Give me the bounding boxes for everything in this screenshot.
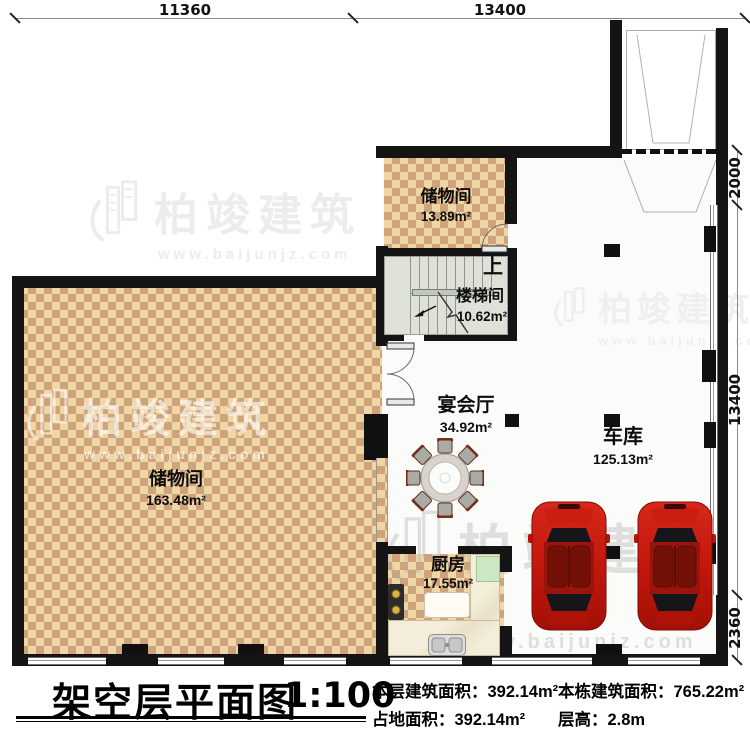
dimension-right-1: 2000 [726, 143, 744, 213]
wall-pier [704, 422, 716, 448]
sink [428, 634, 466, 656]
stat-land-area: 占地面积：392.14m² [372, 706, 525, 730]
stat-label: 本层建筑面积： [372, 683, 488, 701]
column [604, 244, 620, 257]
watermark-url: www.baijunjz.com [158, 246, 362, 263]
dimension-right-3: 2360 [726, 593, 744, 663]
wall-pier [702, 350, 716, 382]
wall-storage-right [505, 146, 517, 224]
room-area-banquet: 34.92m² [416, 420, 516, 435]
title-underline [16, 716, 366, 719]
title-underline [16, 721, 366, 722]
room-area-storage-top: 13.89m² [396, 210, 496, 225]
wall-pier [704, 226, 716, 252]
window [158, 657, 224, 665]
driveway-wall [716, 28, 728, 150]
room-label-storage-top: 储物间 [396, 188, 496, 207]
room-label-banquet: 宴会厅 [410, 396, 522, 417]
brand-logo-icon [86, 178, 144, 244]
dimension-top-2: 13400 [430, 1, 570, 19]
stat-floor-area: 本层建筑面积：392.14m² [372, 678, 558, 702]
car [528, 500, 610, 632]
wall-pier [122, 644, 148, 654]
stair-direction-arrow [412, 301, 438, 319]
garage-door-dashed [622, 149, 716, 154]
room-label-garage: 车库 [586, 426, 660, 448]
wall-kitchen-top [376, 546, 416, 554]
wall-left-building-top [12, 276, 384, 288]
wall-left [12, 276, 24, 666]
wall-bottom [12, 654, 728, 666]
driveway-wall [610, 20, 622, 150]
room-label-kitchen: 厨房 [404, 556, 492, 575]
stat-value: 765.22m² [674, 683, 745, 701]
page-title: 架空层平面图 [52, 672, 298, 728]
wall-pier [596, 644, 622, 654]
floor-plan-canvas: 柏竣建筑 www.baijunjz.com 柏竣建筑 www.baijunjz.… [0, 0, 750, 748]
wall-kitchen-left [376, 540, 388, 666]
stair-up-label: 上 [478, 256, 508, 278]
stat-label: 本栋建筑面积： [558, 683, 674, 701]
dimension-top-1: 11360 [120, 1, 250, 19]
stat-floor-height: 层高：2.8m [558, 706, 645, 730]
watermark: 柏竣建筑 www.baijunjz.com [86, 178, 362, 263]
window [492, 657, 592, 665]
dining-table [406, 438, 484, 518]
stat-value: 392.14m² [455, 711, 526, 729]
room-label-storage-left: 储物间 [126, 470, 226, 490]
watermark-brand: 柏竣建筑 [154, 179, 362, 243]
driveway-ramp [626, 30, 716, 150]
kitchen-island [424, 592, 470, 618]
column [364, 414, 388, 460]
window [284, 657, 346, 665]
window [390, 657, 462, 665]
stat-building-area: 本栋建筑面积：765.22m² [558, 678, 744, 702]
room-area-garage: 125.13m² [580, 452, 666, 467]
wall-pier [238, 644, 264, 654]
inner-ramp [622, 158, 718, 214]
window [628, 657, 700, 665]
room-area-stairwell: 10.62m² [444, 310, 520, 325]
room-area-storage-left: 163.48m² [126, 493, 226, 508]
stat-value: 392.14m² [488, 683, 559, 701]
wall-kitchen-right [500, 546, 512, 572]
room-label-stairwell: 楼梯间 [440, 288, 520, 306]
doorway-floor-strip [376, 458, 388, 542]
room-area-kitchen: 17.55m² [402, 577, 494, 592]
stat-label: 层高： [558, 711, 608, 729]
stat-value: 2.8m [608, 711, 646, 729]
window [28, 657, 106, 665]
wall-top-main [376, 146, 622, 158]
dimension-right-2: 13400 [726, 365, 744, 435]
car [634, 500, 716, 632]
stat-label: 占地面积： [372, 711, 455, 729]
